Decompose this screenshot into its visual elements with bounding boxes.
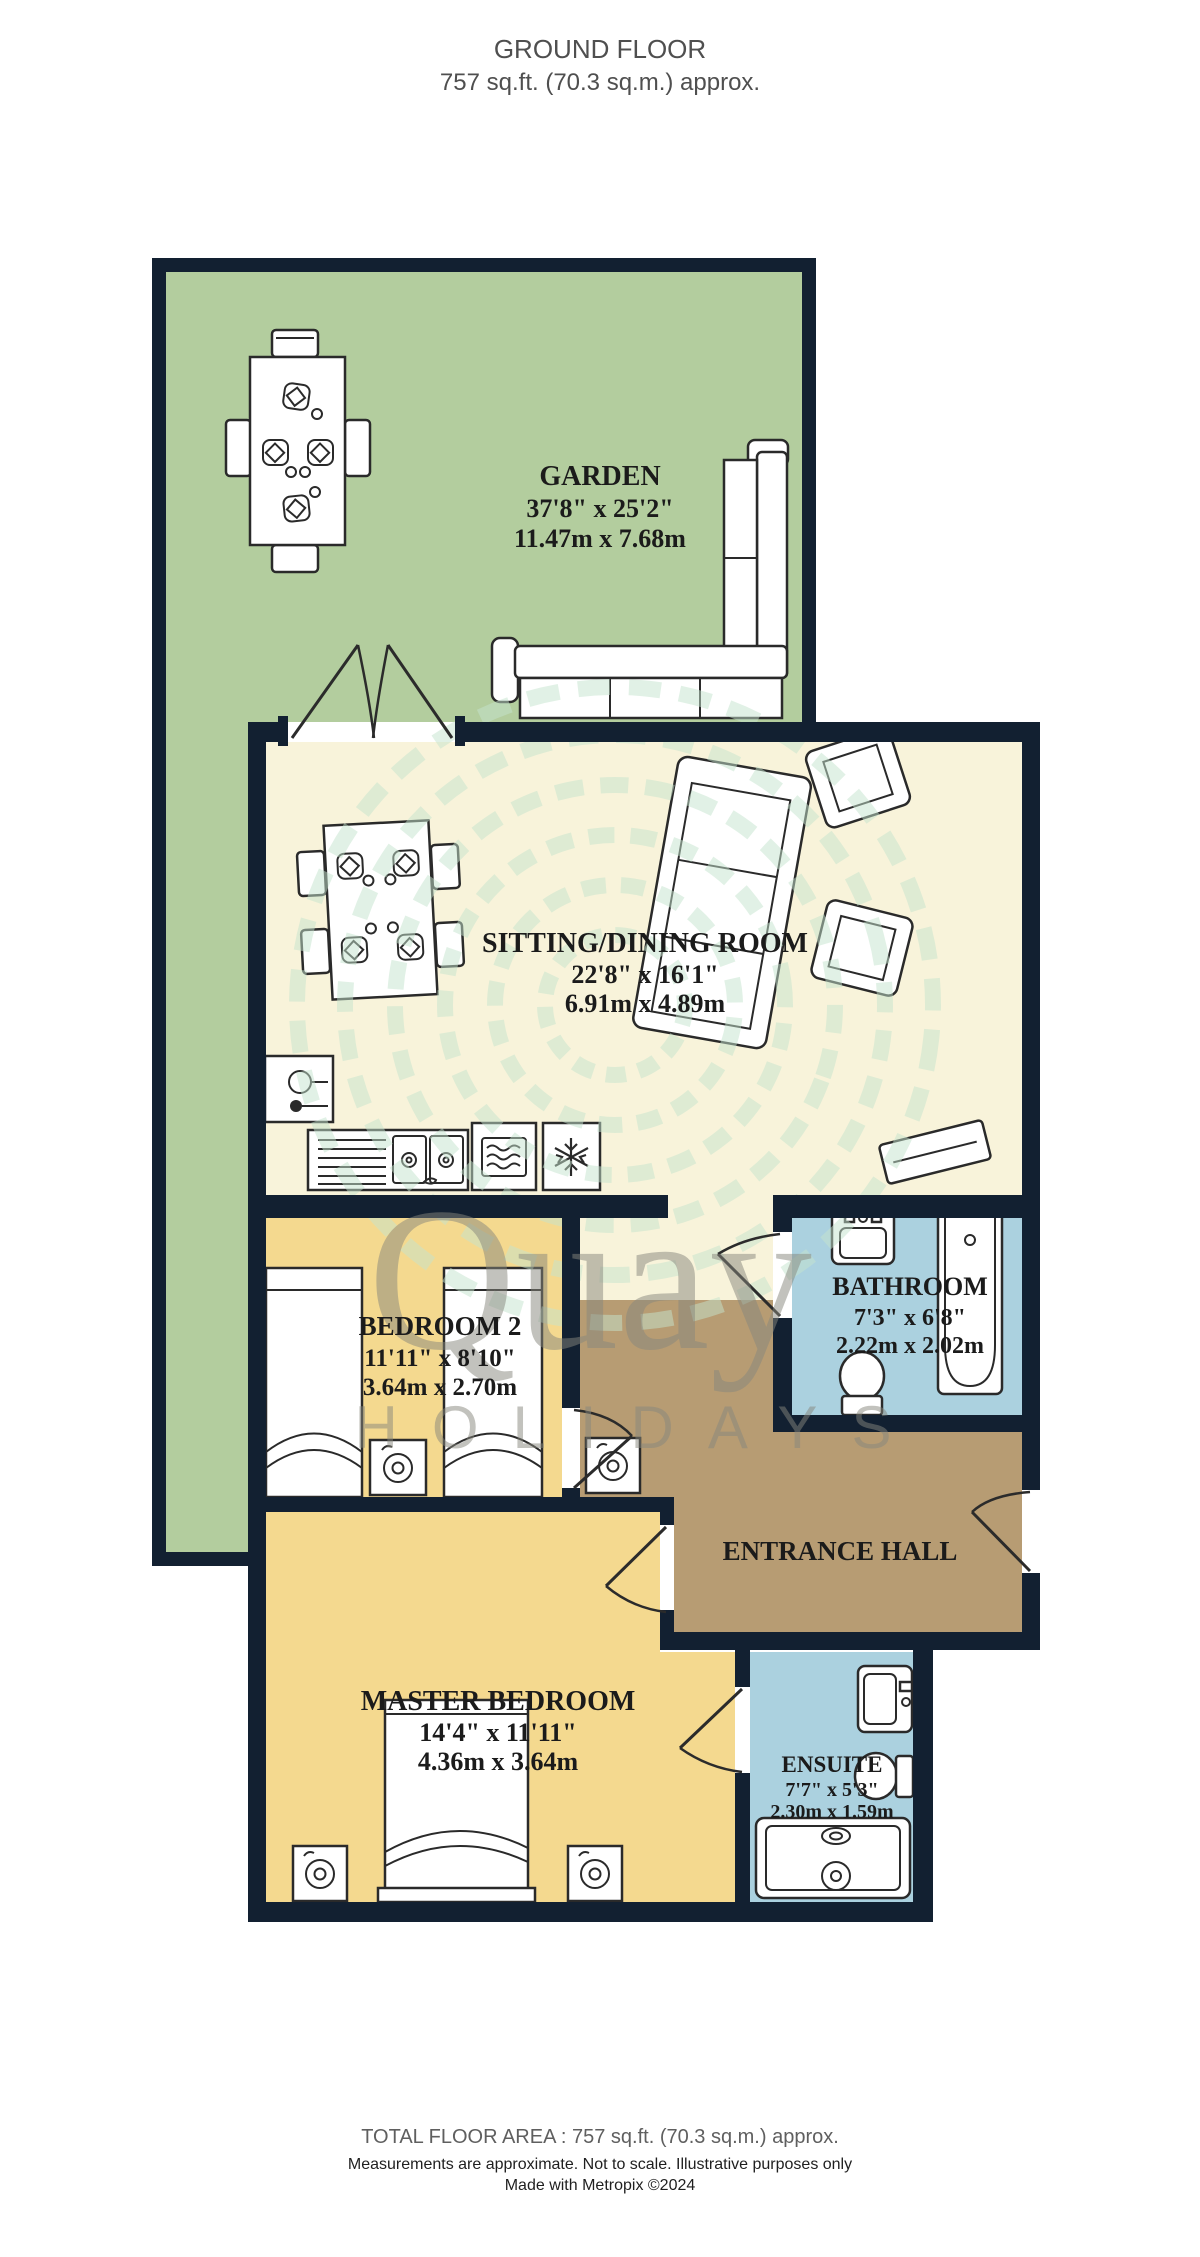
bedside-table bbox=[293, 1846, 347, 1901]
bedroom2-label: BEDROOM 2 11'11" x 8'10" 3.64m x 2.70m bbox=[359, 1311, 522, 1401]
wall bbox=[248, 1902, 933, 1922]
wall bbox=[152, 258, 816, 272]
bedside-table bbox=[568, 1846, 622, 1901]
room-dims-metric: 4.36m x 3.64m bbox=[418, 1747, 579, 1776]
footer-disclaimer: Measurements are approximate. Not to sca… bbox=[348, 2156, 852, 2173]
room-dims-metric: 6.91m x 4.89m bbox=[565, 989, 726, 1018]
wall bbox=[735, 1773, 750, 1902]
room-dims-metric: 11.47m x 7.68m bbox=[514, 524, 686, 553]
room-dims-imperial: 7'7" x 5'3" bbox=[785, 1779, 878, 1801]
wall bbox=[660, 1610, 674, 1650]
room-dims-imperial: 14'4" x 11'11" bbox=[419, 1718, 576, 1747]
ensuite-sink bbox=[858, 1666, 912, 1732]
wall bbox=[802, 258, 816, 742]
entrance-hall-label: ENTRANCE HALL bbox=[723, 1536, 958, 1566]
wall bbox=[660, 1512, 674, 1525]
room-name: BATHROOM bbox=[832, 1272, 988, 1301]
ensuite-label: ENSUITE 7'7" x 5'3" 2.30m x 1.59m bbox=[770, 1752, 894, 1823]
room-name: ENTRANCE HALL bbox=[723, 1536, 958, 1566]
room-name: SITTING/DINING ROOM bbox=[482, 928, 808, 959]
room-name: ENSUITE bbox=[782, 1752, 883, 1777]
room-name: GARDEN bbox=[539, 461, 660, 492]
shower-tray bbox=[756, 1818, 910, 1898]
room-dims-metric: 3.64m x 2.70m bbox=[363, 1374, 517, 1401]
wall bbox=[152, 258, 166, 1566]
garden-label: GARDEN 37'8" x 25'2" 11.47m x 7.68m bbox=[514, 461, 686, 553]
single-bed bbox=[266, 1268, 362, 1497]
footer-credit: Made with Metropix ©2024 bbox=[505, 2177, 696, 2194]
room-dims-imperial: 22'8" x 16'1" bbox=[571, 960, 718, 989]
watermark-sub: HOLIDAYS bbox=[355, 1394, 926, 1461]
floorplan-canvas: GROUND FLOOR 757 sq.ft. (70.3 sq.m.) app… bbox=[0, 0, 1200, 2257]
room-dims-metric: 2.22m x 2.02m bbox=[836, 1333, 984, 1359]
wall bbox=[773, 1195, 1040, 1218]
page-title: GROUND FLOOR bbox=[494, 34, 706, 64]
wall bbox=[735, 1650, 750, 1687]
footer-total-area: TOTAL FLOOR AREA : 757 sq.ft. (70.3 sq.m… bbox=[361, 2126, 839, 2148]
wall bbox=[278, 716, 288, 746]
room-dims-imperial: 37'8" x 25'2" bbox=[526, 494, 673, 523]
page-subtitle: 757 sq.ft. (70.3 sq.m.) approx. bbox=[440, 69, 760, 96]
wine-cabinet bbox=[265, 1056, 333, 1122]
room-dims-metric: 2.30m x 1.59m bbox=[770, 1801, 894, 1823]
room-name: BEDROOM 2 bbox=[359, 1311, 522, 1341]
room-dims-imperial: 11'11" x 8'10" bbox=[364, 1345, 515, 1372]
wall bbox=[913, 1632, 933, 1922]
room-dims-imperial: 7'3" x 6'8" bbox=[854, 1305, 966, 1331]
floorplan-page: GROUND FLOOR 757 sq.ft. (70.3 sq.m.) app… bbox=[0, 0, 1200, 2257]
wall bbox=[660, 1632, 1040, 1650]
room-name: MASTER BEDROOM bbox=[361, 1686, 636, 1717]
wall bbox=[455, 722, 1040, 742]
wall bbox=[248, 1497, 674, 1512]
wall bbox=[1022, 722, 1040, 1490]
bathroom-label: BATHROOM 7'3" x 6'8" 2.22m x 2.02m bbox=[832, 1272, 988, 1359]
wall bbox=[248, 722, 266, 1922]
